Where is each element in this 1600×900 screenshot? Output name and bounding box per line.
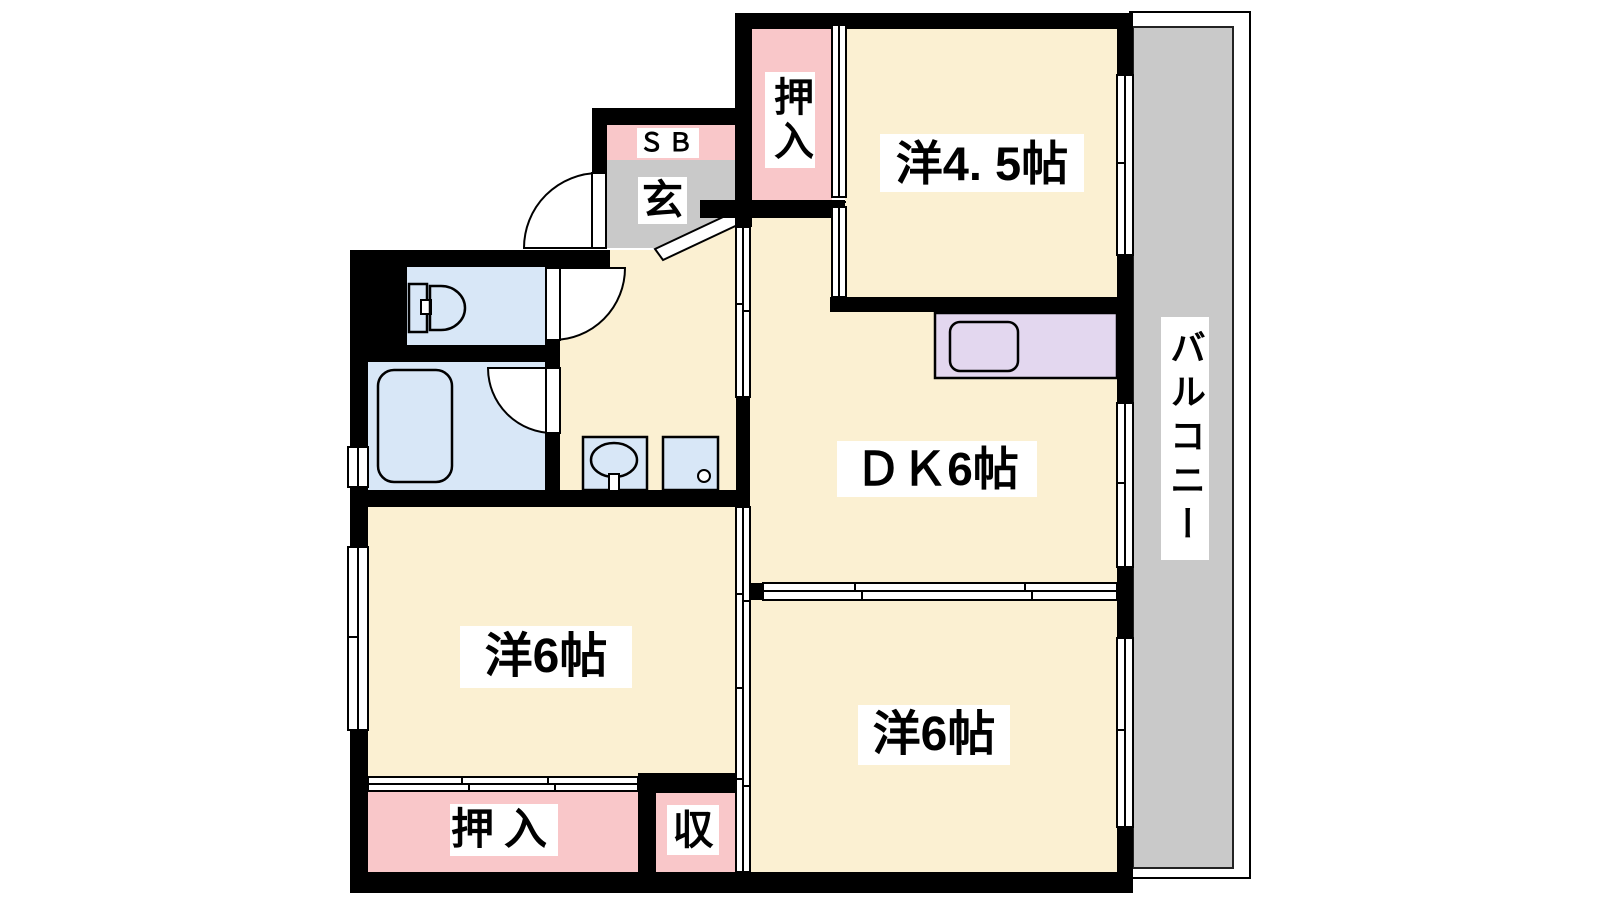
wall: [700, 200, 845, 218]
washbasin-tap: [609, 474, 619, 492]
room-dk-floor: [750, 218, 1117, 585]
label-western-room-6-right: 洋6帖: [858, 705, 1010, 765]
label-closet-bottom: 押入: [450, 804, 558, 856]
wall: [1117, 567, 1133, 638]
wall: [735, 29, 752, 227]
washing-machine-pan: [663, 437, 718, 490]
wall: [350, 345, 545, 362]
wall: [1117, 827, 1133, 872]
wall: [750, 583, 763, 600]
label-dining-kitchen: ＤＫ6帖: [837, 441, 1037, 497]
kitchen-sink: [950, 322, 1018, 371]
window: [348, 547, 368, 730]
label-western-room-6-left: 洋6帖: [460, 626, 632, 688]
wall: [545, 433, 560, 492]
window: [1117, 75, 1133, 255]
window: [1117, 638, 1133, 827]
wall: [736, 397, 750, 507]
label-western-room-4-5: 洋4. 5帖: [880, 134, 1084, 192]
label-shoe-box: ＳＢ: [637, 128, 699, 158]
wall: [1117, 25, 1133, 75]
wall: [592, 108, 737, 125]
wall: [350, 490, 750, 507]
sliding-door: [368, 777, 638, 791]
label-entrance: 玄: [638, 177, 687, 224]
entrance-door: [524, 173, 606, 248]
wall: [735, 13, 1133, 29]
wall: [350, 872, 1133, 893]
washing-machine-drain: [698, 470, 710, 482]
wall: [592, 108, 607, 173]
label-closet-top: 押入: [765, 72, 815, 168]
kitchen-counter: [935, 313, 1117, 378]
sliding-door: [736, 507, 750, 872]
window: [348, 447, 368, 487]
wall: [350, 730, 368, 872]
wall: [368, 267, 407, 345]
sliding-door: [763, 583, 1117, 600]
wall: [545, 250, 560, 268]
label-balcony: バルコニー: [1161, 317, 1209, 560]
sliding-door: [736, 227, 750, 397]
floor-plan: 押入 洋4. 5帖 ＳＢ 玄 バルコニー ＤＫ6帖 洋6帖 洋6帖 押入 収: [0, 0, 1600, 900]
wall: [638, 790, 656, 872]
window: [1117, 403, 1133, 567]
wall: [545, 340, 560, 368]
sliding-door: [832, 25, 846, 297]
wall: [350, 250, 610, 267]
wall: [1117, 255, 1133, 403]
wall: [830, 297, 1133, 312]
label-storage: 収: [667, 805, 719, 855]
